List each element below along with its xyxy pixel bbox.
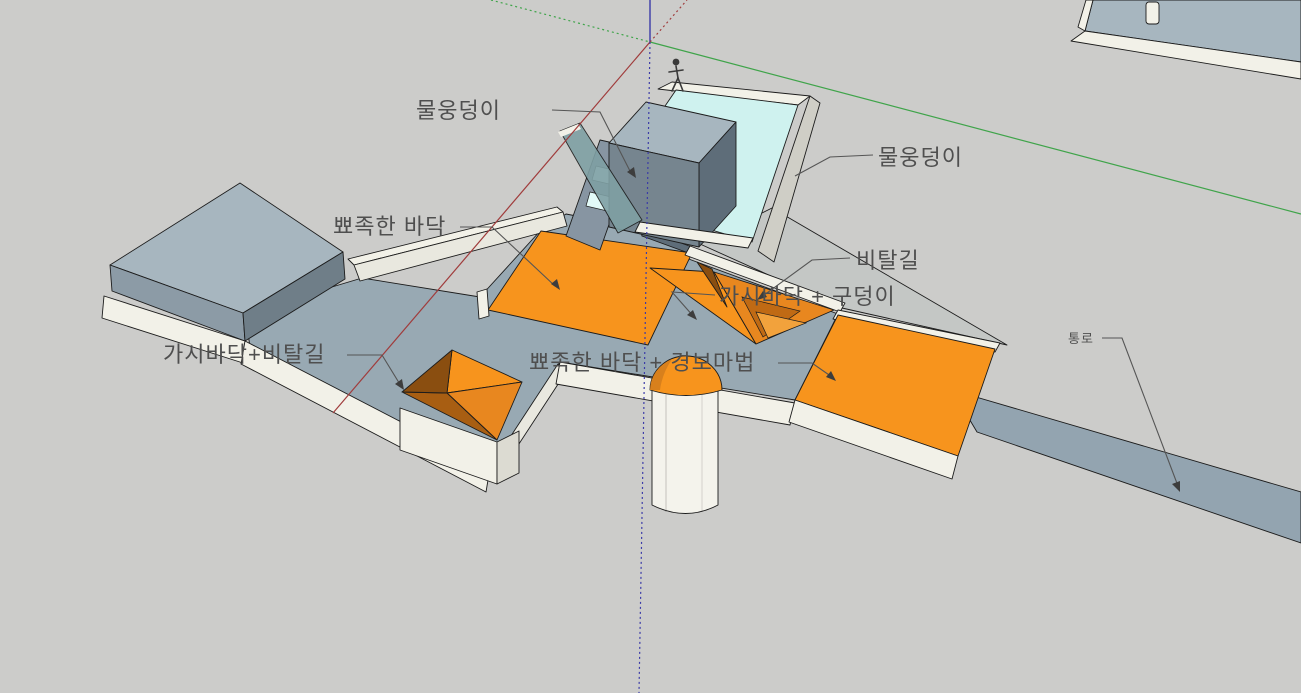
label-water-pool-right: 물웅덩이 xyxy=(878,145,963,170)
label-slope: 비탈길 xyxy=(856,248,920,273)
viewport-canvas[interactable]: 물웅덩이 물웅덩이 뾰족한 바닥 비탈길 가시바닥 + 구덩이 가시바닥+비탈길… xyxy=(0,0,1301,693)
pedestal-cylinder[interactable] xyxy=(652,388,718,514)
label-passage: 통로 xyxy=(1068,331,1094,346)
alarm-dome-cylinder[interactable] xyxy=(650,356,722,514)
label-water-pool-left: 물웅덩이 xyxy=(416,98,501,123)
label-spike-floor: 뾰족한 바닥 xyxy=(333,214,446,239)
label-spike-alarm: 뾰족한 바닥 + 경보마법 xyxy=(529,350,755,375)
corner-platform-slot[interactable] xyxy=(1146,2,1159,24)
label-spike-slope: 가시바닥+비탈길 xyxy=(163,342,326,367)
corner-post xyxy=(477,289,489,319)
label-spike-pit: 가시바닥 + 구덩이 xyxy=(719,284,896,309)
